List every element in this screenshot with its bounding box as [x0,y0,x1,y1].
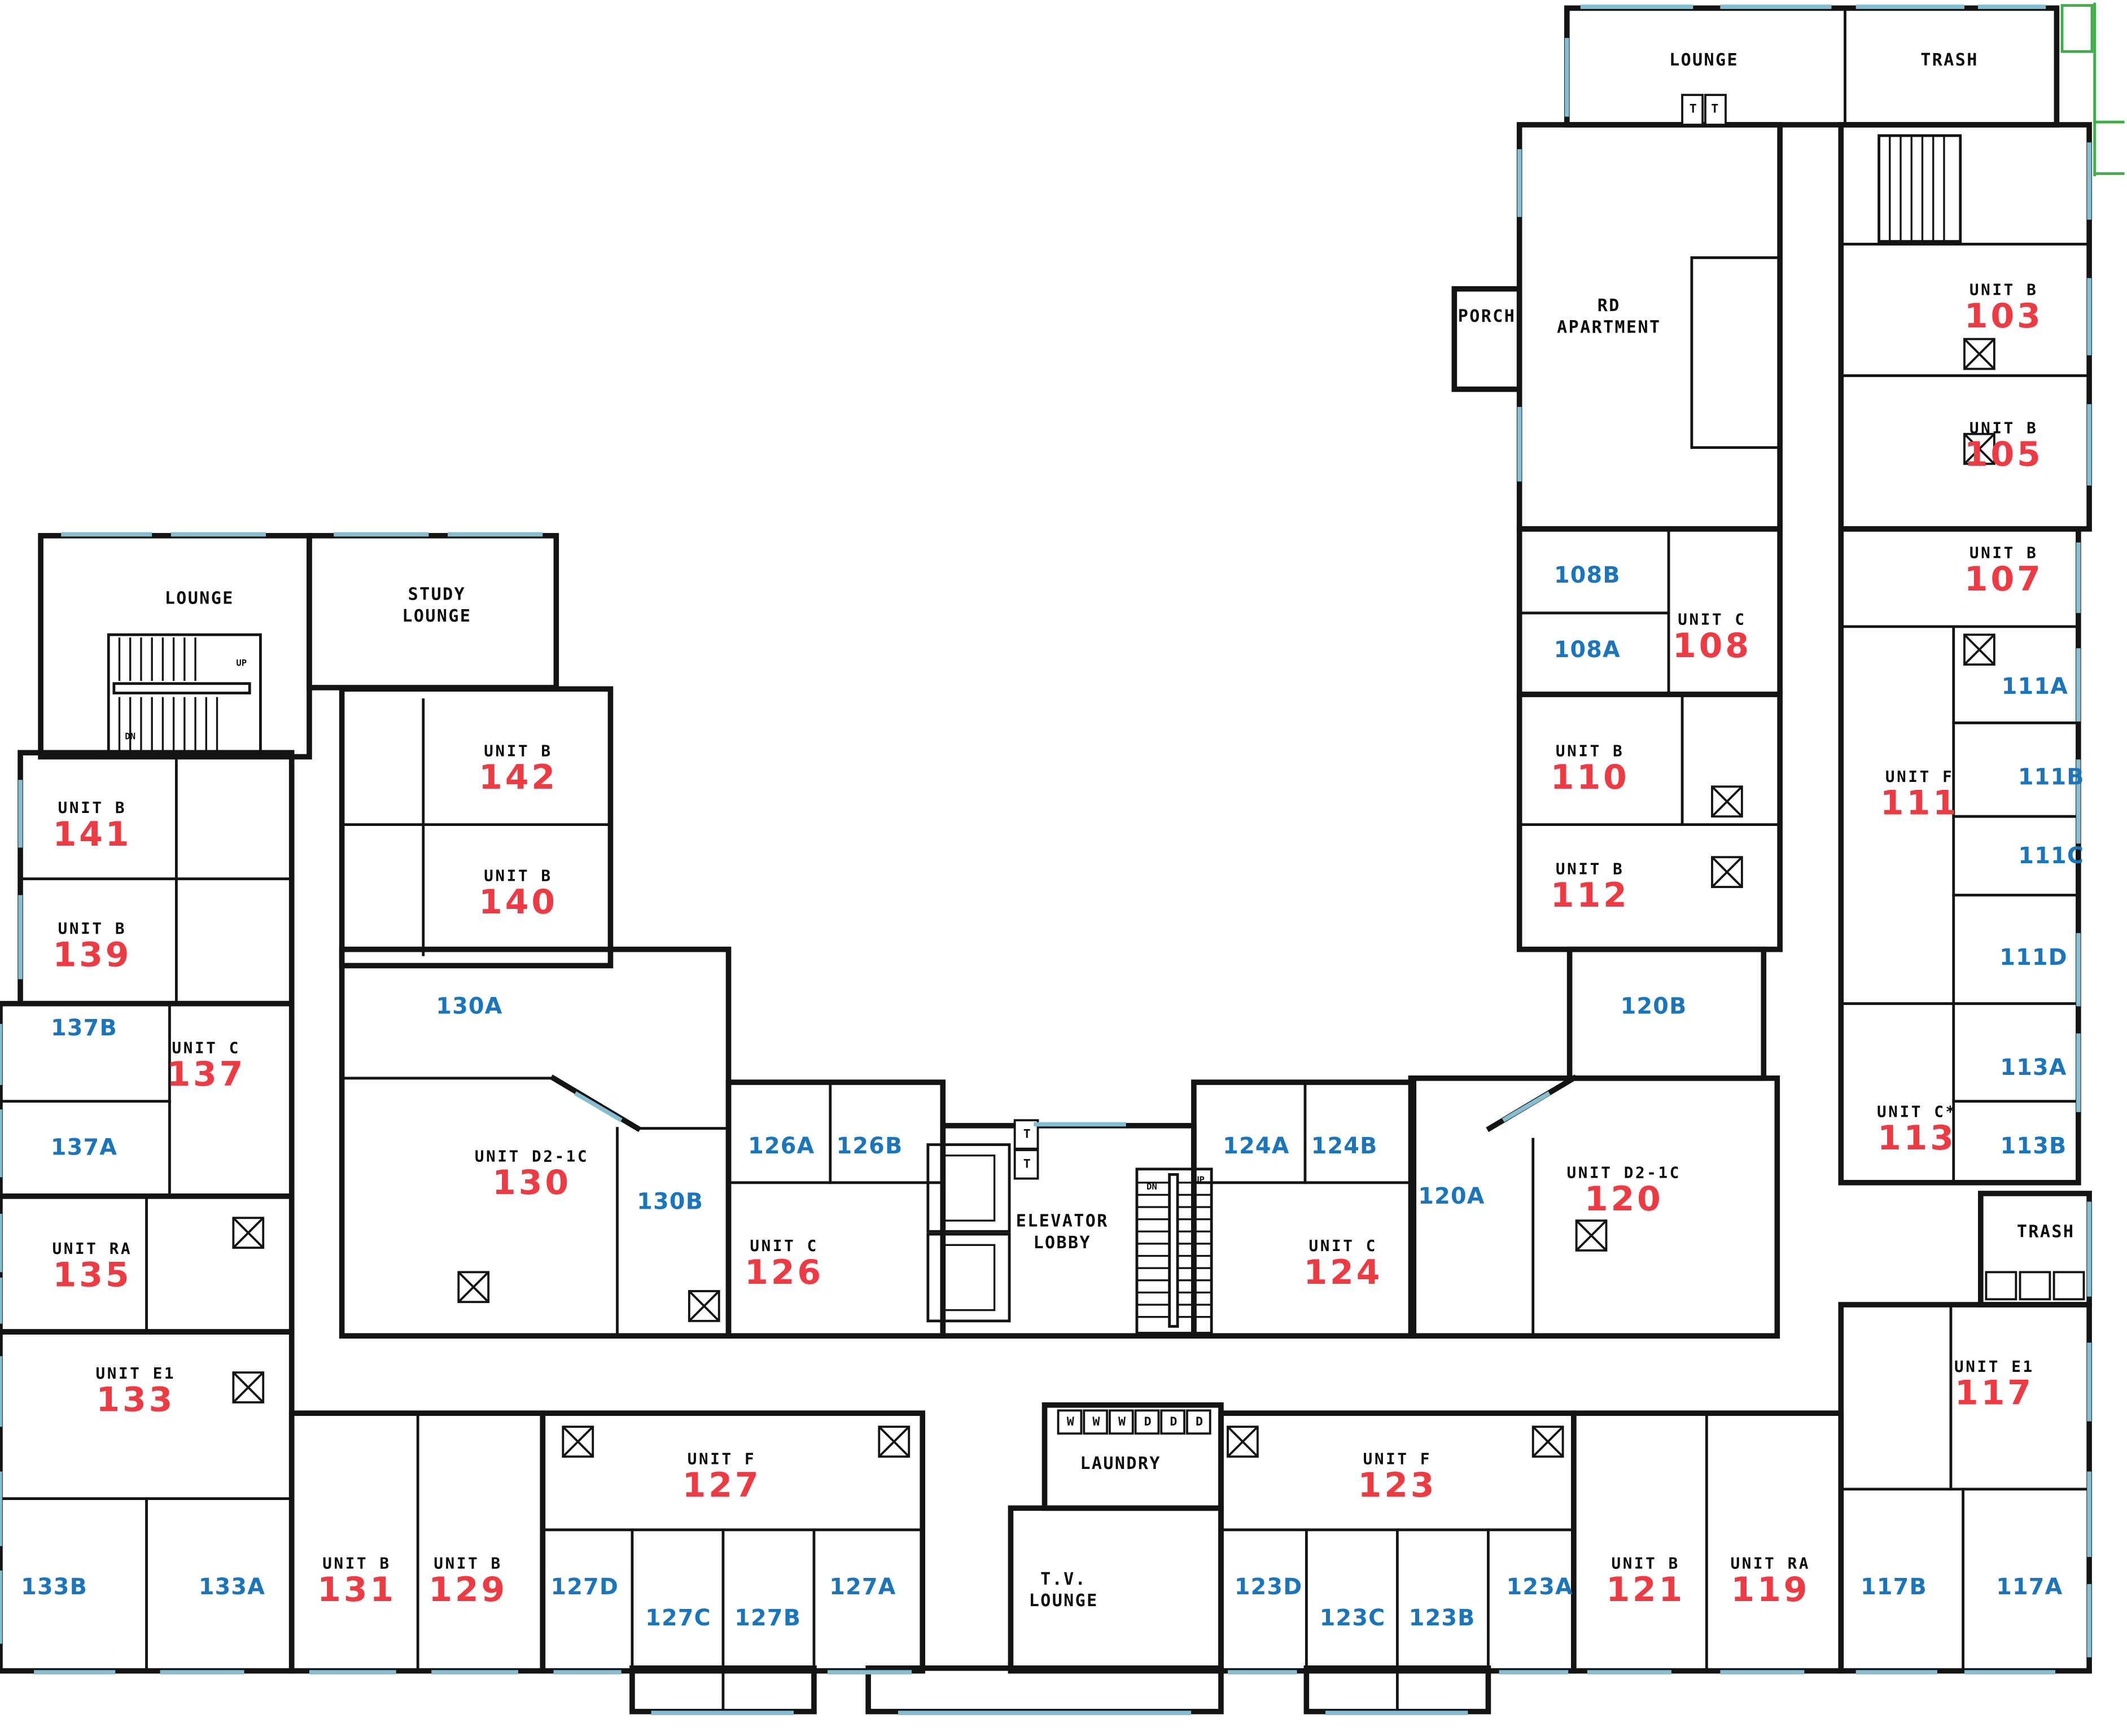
floorplan-walls [0,0,2127,1736]
floor-plan: UNIT B103UNIT B105UNIT B107UNIT C108UNIT… [0,0,2127,1736]
